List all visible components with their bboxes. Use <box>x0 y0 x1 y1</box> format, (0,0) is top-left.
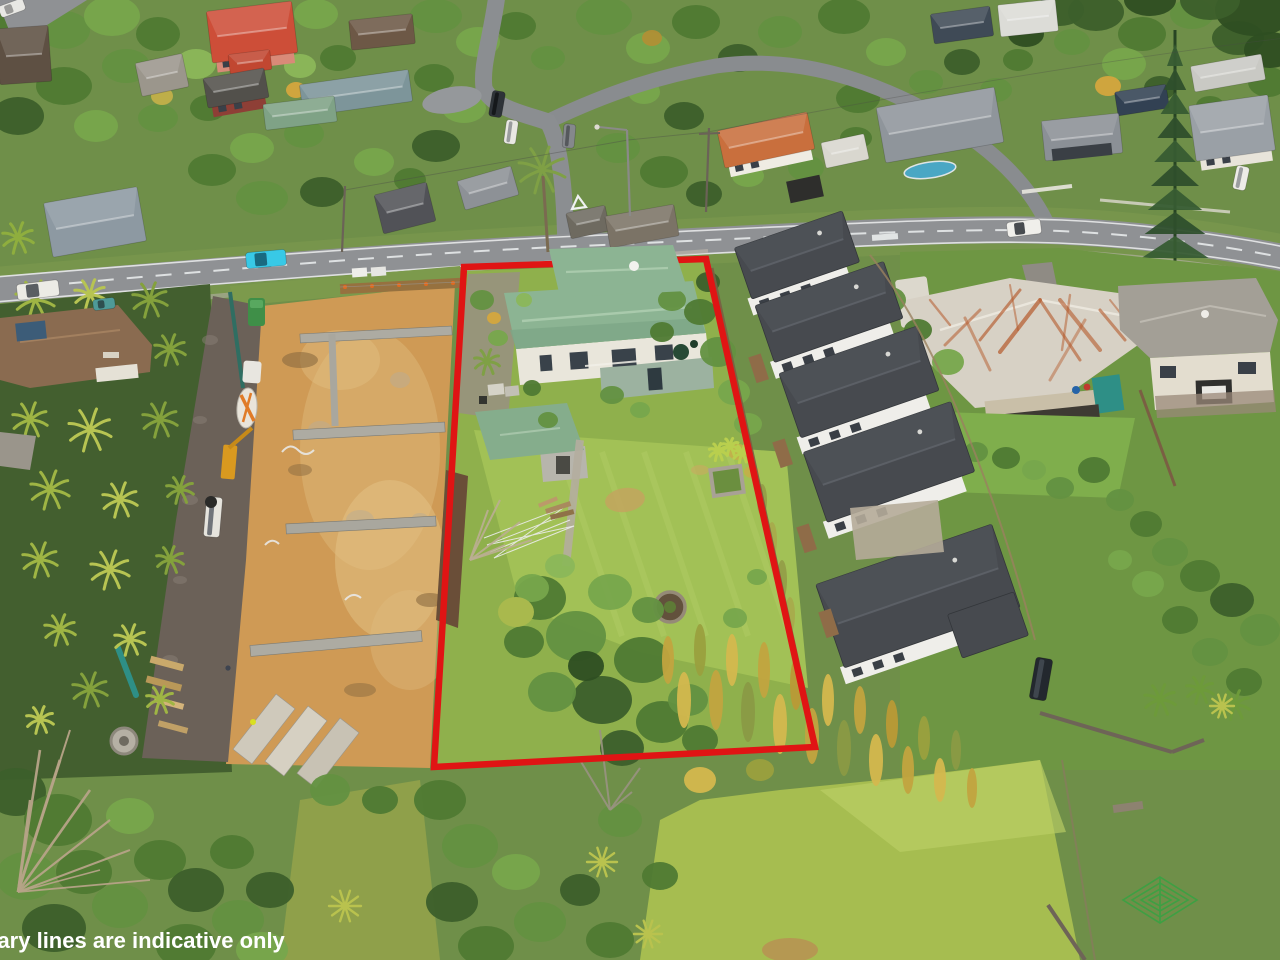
bamboo-clump <box>746 759 774 781</box>
fence-post-cap <box>424 282 428 286</box>
satellite-dish <box>1201 310 1209 318</box>
bank-bush <box>1152 538 1188 566</box>
palm-centre <box>88 293 93 298</box>
teal-car <box>92 297 115 311</box>
forest-tree <box>168 868 224 912</box>
forest-tree <box>362 786 398 814</box>
bare-lawn-patch <box>691 465 709 475</box>
palm-centre <box>168 558 173 563</box>
tree-canopy <box>664 102 704 130</box>
palm-centre <box>148 298 153 303</box>
bamboo-clump <box>902 746 914 794</box>
bank-bush <box>1132 571 1164 597</box>
worker-hi-vis <box>250 719 256 725</box>
palm-centre <box>178 488 183 493</box>
cyan-hatchback <box>245 249 286 268</box>
door <box>647 368 663 391</box>
bank-bush <box>1130 511 1162 537</box>
bamboo-clump <box>918 716 930 760</box>
garden-shrub <box>523 380 541 396</box>
street-lamp-head <box>594 124 599 129</box>
tree-canopy <box>1054 29 1090 55</box>
tree-canopy <box>300 177 344 207</box>
palm-centre <box>1198 688 1203 693</box>
tree-canopy <box>531 46 565 70</box>
forest-tree <box>426 882 478 922</box>
tree-canopy <box>236 181 288 215</box>
fence-post-cap <box>451 281 455 285</box>
property-tree <box>747 569 767 585</box>
patio-gap <box>850 500 944 560</box>
tree-canopy <box>230 133 274 163</box>
tree-canopy <box>758 16 802 48</box>
brown-house <box>349 14 416 51</box>
bank-bush <box>932 349 964 375</box>
garden-shrub <box>600 386 624 404</box>
solar-panel <box>15 320 47 341</box>
truck-cab <box>242 360 261 383</box>
small-roof-left-edge <box>0 432 36 470</box>
tree-canopy <box>74 110 118 142</box>
bamboo-clump <box>741 682 755 742</box>
aerial-photo: dary lines are indicative only <box>0 0 1280 960</box>
property-tree <box>614 637 670 683</box>
bamboo-clump <box>967 768 977 808</box>
left-edge-house <box>0 25 52 84</box>
tree-canopy <box>1102 48 1146 80</box>
palm-centre <box>485 360 490 365</box>
white-house <box>997 0 1058 37</box>
property-tree <box>504 626 544 658</box>
property-tree <box>568 651 604 681</box>
golden-shrub <box>487 312 501 324</box>
palm-centre <box>1158 698 1163 703</box>
palm-centre <box>740 452 745 457</box>
tree-canopy <box>294 0 338 29</box>
blue-bin <box>1072 386 1080 394</box>
palm-centre <box>38 558 43 563</box>
bank-bush <box>1106 489 1134 511</box>
tree-canopy <box>909 70 943 94</box>
shed-door <box>556 456 570 474</box>
pole-crossarm <box>699 133 720 134</box>
property-tree <box>588 574 632 610</box>
window <box>1160 366 1176 378</box>
gravel-patch <box>193 416 207 424</box>
bamboo-clump <box>684 767 716 793</box>
car-glass <box>1014 222 1026 235</box>
bank-bush <box>1210 583 1254 617</box>
bank-bush <box>992 447 1020 469</box>
palm-centre <box>108 568 113 573</box>
raised-planter <box>710 466 743 496</box>
tree-canopy <box>354 148 394 176</box>
satellite-dish <box>629 261 639 271</box>
palm-centre <box>118 498 123 503</box>
subject-house-upper-roof <box>549 245 688 297</box>
window-awning <box>103 352 119 358</box>
bank-bush <box>1022 460 1046 480</box>
right-edge-house <box>1188 95 1276 171</box>
bamboo-clump <box>886 700 898 748</box>
concrete-ring-hole <box>119 736 129 746</box>
tree-canopy <box>596 133 640 163</box>
bamboo-clump <box>837 720 851 776</box>
tree-canopy <box>866 38 906 66</box>
bamboo-clump <box>758 642 770 698</box>
forest-tree <box>586 922 634 958</box>
forest-tree <box>442 824 498 868</box>
tree-canopy <box>1003 49 1033 71</box>
tree-canopy <box>410 0 462 33</box>
water-tank <box>673 344 689 360</box>
bamboo-clump <box>662 636 674 684</box>
tree-canopy <box>412 130 460 162</box>
autumn-tree <box>642 30 662 46</box>
tree-canopy <box>136 17 180 51</box>
tree-canopy <box>686 181 722 207</box>
bamboo-clump <box>854 686 866 734</box>
garden-shrub <box>658 289 686 311</box>
palm-centre <box>540 168 545 173</box>
site-sign <box>371 266 387 276</box>
caption-text: dary lines are indicative only <box>0 928 286 953</box>
bank-bush <box>1162 606 1198 634</box>
bank-bush <box>1192 638 1228 666</box>
palm-centre <box>716 450 721 455</box>
utility-box <box>488 383 505 396</box>
garden-shrub <box>650 322 674 342</box>
forest-tree <box>560 874 600 906</box>
forest-tree <box>246 872 294 908</box>
window <box>1238 362 1256 374</box>
palm-centre <box>48 488 53 493</box>
forest-tree <box>92 884 148 928</box>
tree-canopy <box>1118 17 1166 51</box>
dirt-shadow <box>344 683 376 697</box>
water-tank-small <box>690 340 698 348</box>
tree-canopy <box>944 49 980 75</box>
property-tree <box>546 611 606 661</box>
pump-body <box>221 444 238 479</box>
palm-centre <box>158 418 163 423</box>
property-tree <box>723 608 747 628</box>
palm-centre <box>38 718 43 723</box>
car-glass <box>254 252 267 266</box>
utility-box <box>505 385 520 396</box>
bamboo-clump <box>709 670 723 730</box>
palm-centre <box>16 236 21 241</box>
bamboo-clump <box>677 672 691 728</box>
tree-canopy <box>320 45 356 71</box>
palm-centre <box>158 698 163 703</box>
bank-bush <box>1226 668 1262 696</box>
worker <box>225 665 230 670</box>
red-box <box>1084 384 1091 391</box>
forest-tree <box>310 774 350 806</box>
bamboo-clump <box>822 674 834 726</box>
bank-bush <box>1180 560 1220 592</box>
gravel-patch <box>202 335 218 345</box>
bamboo-clump <box>694 624 706 676</box>
golden-tree <box>498 597 534 627</box>
garden-shrub <box>516 293 532 307</box>
car-glass <box>26 283 40 297</box>
gray-car <box>562 124 576 149</box>
dirt-shadow <box>282 352 318 368</box>
palm-centre <box>88 688 93 693</box>
construction-site <box>0 266 462 788</box>
ute-tray-load <box>205 496 217 508</box>
window <box>655 344 674 360</box>
forest-tree <box>492 854 540 890</box>
aerial-scene: dary lines are indicative only <box>0 0 1280 960</box>
dirt-shadow <box>288 464 312 476</box>
bank-bush <box>1078 457 1110 483</box>
tree-canopy <box>188 154 236 186</box>
bin <box>479 396 487 404</box>
bamboo-clump <box>951 730 961 770</box>
property-tree <box>528 672 576 712</box>
property-tree <box>545 554 575 578</box>
bamboo-clump <box>726 634 738 686</box>
property-tree <box>632 597 664 623</box>
bank-bush <box>1046 477 1074 499</box>
window <box>539 355 552 372</box>
palm-centre <box>128 638 133 643</box>
bamboo-clump <box>934 758 946 802</box>
forest-tree <box>598 803 642 837</box>
garden-shrub <box>470 290 494 310</box>
forest-tree <box>642 862 678 890</box>
garden-shrub <box>630 402 650 418</box>
forest-tree <box>210 835 254 869</box>
forest-tree <box>414 780 466 820</box>
garden-shrub <box>538 412 558 428</box>
garden-shrub <box>488 330 508 346</box>
bank-bush <box>1108 550 1132 570</box>
palm-centre <box>88 428 93 433</box>
palm-centre <box>168 348 173 353</box>
concrete-blotch <box>390 372 410 388</box>
tree-canopy <box>672 5 720 39</box>
bank-bush <box>1240 614 1280 646</box>
tree-canopy <box>138 104 178 132</box>
portaloo-roof <box>250 300 263 308</box>
gravel-patch <box>173 576 187 584</box>
roof <box>1118 278 1278 358</box>
property-tree <box>572 676 632 724</box>
palm-centre <box>58 628 63 633</box>
bamboo-clump <box>869 734 883 786</box>
forest-tree <box>106 798 154 834</box>
garden-shrub <box>684 299 716 325</box>
palm-centre <box>28 418 33 423</box>
car-glass <box>97 300 105 309</box>
palm-centre <box>728 445 733 450</box>
forest-tree <box>514 902 566 942</box>
site-sign <box>352 267 368 277</box>
bamboo-clump <box>773 694 787 754</box>
tree-canopy <box>640 156 688 188</box>
